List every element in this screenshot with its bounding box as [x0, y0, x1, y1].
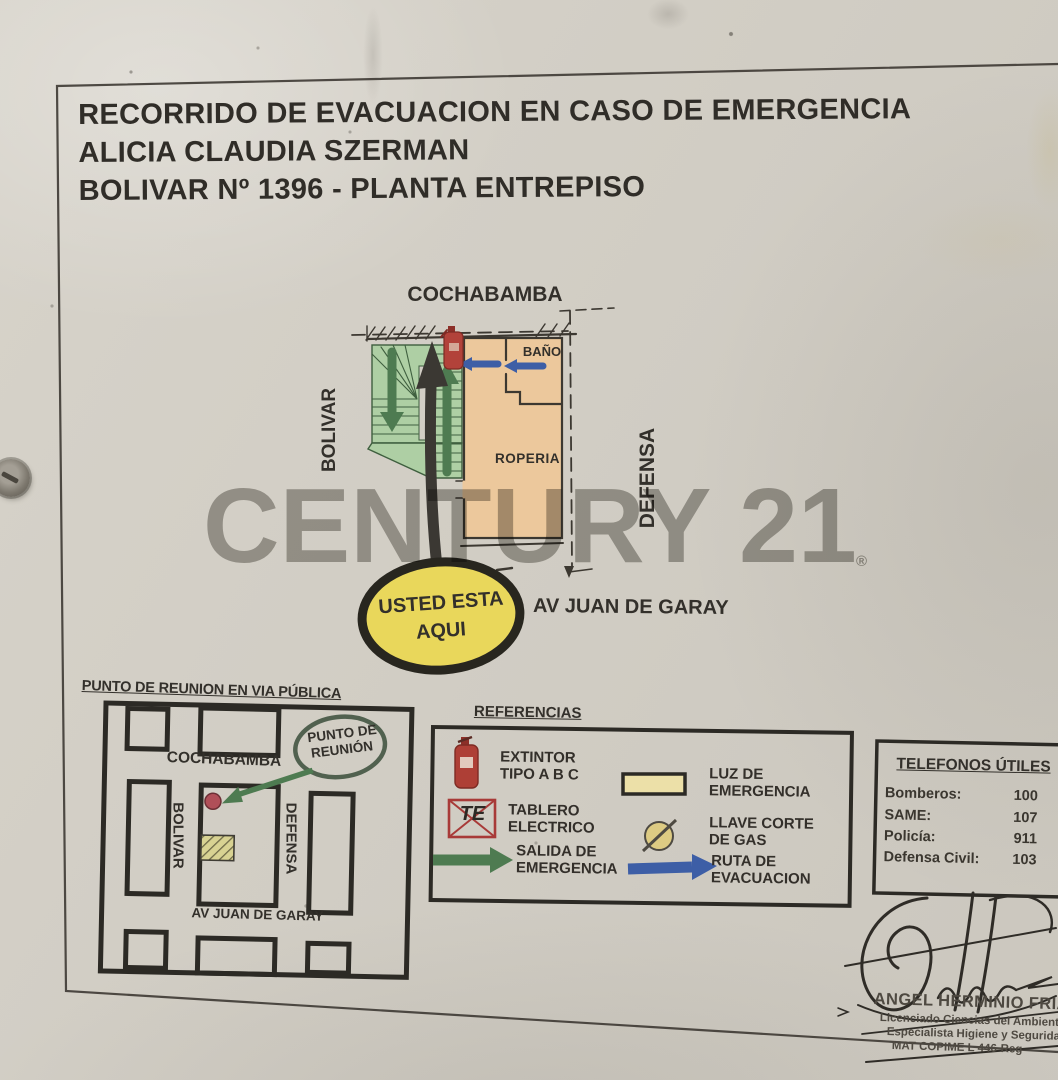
emergency-light-icon	[623, 774, 685, 794]
phone-number: 100	[1014, 788, 1039, 805]
legend-text: TIPO A B C	[500, 766, 579, 784]
city-block	[127, 782, 169, 895]
street-corner-dash	[560, 308, 614, 311]
city-block	[127, 708, 168, 749]
street-label-garay: AV JUAN DE GARAY	[533, 595, 728, 620]
legend-item-salida: SALIDA DE EMERGENCIA	[516, 843, 618, 877]
legend-text: TABLERO	[508, 802, 595, 820]
phones-title: TELEFONOS ÚTILES	[896, 755, 1050, 776]
legend-text: EXTINTOR	[500, 749, 579, 767]
room-label-bathroom: BAÑO	[512, 344, 572, 359]
legend-item-extintor: EXTINTOR TIPO A B C	[500, 749, 579, 783]
phone-label: Policía:	[884, 828, 936, 845]
fire-extinguisher-icon	[455, 737, 478, 788]
useful-phones-panel: TELEFONOS ÚTILES Bomberos: 100 SAME: 107…	[874, 741, 1058, 897]
city-block	[309, 793, 353, 913]
phone-number: 103	[1012, 852, 1037, 869]
city-block	[307, 943, 349, 973]
room-label-laundry: ROPERIA	[485, 451, 570, 466]
phone-number: 911	[1013, 831, 1037, 847]
phone-label: SAME:	[884, 807, 931, 824]
registered-trademark-icon: ®	[856, 553, 867, 570]
blue-route-arrow-icon	[628, 854, 717, 880]
legend-text: DE GAS	[709, 832, 814, 850]
century21-watermark: CENTURY 21	[203, 466, 857, 587]
legend-item-luz: LUZ DE EMERGENCIA	[709, 766, 811, 800]
electrical-panel-symbol: TE	[451, 803, 494, 826]
street-label-cochabamba: COCHABAMBA	[405, 283, 565, 307]
title-line-2: ALICIA CLAUDIA SZERMAN	[78, 128, 911, 172]
legend-text: ELECTRICO	[508, 819, 595, 837]
legend-text: EMERGENCIA	[709, 783, 811, 801]
fire-extinguisher-icon	[441, 326, 463, 369]
evacuation-plan-photo: RECORRIDO DE EVACUACION EN CASO DE EMERG…	[0, 0, 1058, 1080]
phone-label: Bomberos:	[885, 785, 962, 803]
title-line-3: BOLIVAR Nº 1396 - PLANTA ENTREPISO	[79, 166, 912, 210]
document-title: RECORRIDO DE EVACUACION EN CASO DE EMERG…	[78, 90, 912, 210]
phone-number: 107	[1013, 810, 1038, 827]
title-line-1: RECORRIDO DE EVACUACION EN CASO DE EMERG…	[78, 90, 911, 134]
legend-text: EMERGENCIA	[516, 860, 618, 878]
legend-item-ruta: RUTA DE EVACUACION	[711, 853, 811, 887]
legend-text: EVACUACION	[711, 870, 811, 888]
gas-valve-icon	[643, 820, 676, 851]
legend-text: RUTA DE	[711, 853, 811, 871]
meeting-point-dot	[205, 793, 221, 809]
phone-label: Defensa Civil:	[883, 849, 979, 867]
legend-item-tablero: TABLERO ELECTRICO	[508, 802, 595, 836]
city-block	[125, 931, 166, 968]
city-block	[200, 708, 279, 756]
map-street-bolivar: BOLIVAR	[170, 776, 187, 896]
green-exit-arrow-icon	[433, 847, 513, 873]
legend-title: REFERENCIAS	[474, 703, 582, 722]
building-location-hatch	[201, 835, 235, 861]
map-street-defensa: DEFENSA	[283, 779, 300, 899]
legend-item-llave-gas: LLAVE CORTE DE GAS	[709, 815, 814, 849]
city-block	[197, 938, 275, 975]
